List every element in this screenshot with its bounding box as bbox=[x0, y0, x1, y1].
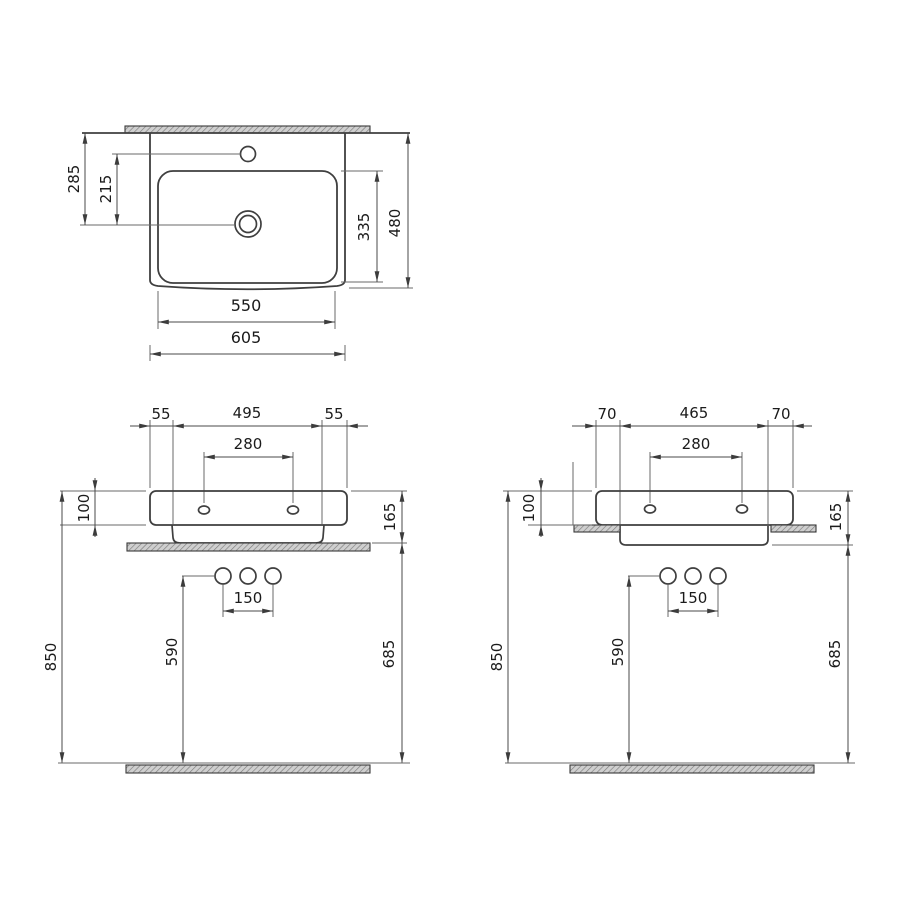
counter-hatch-bar-left bbox=[574, 525, 620, 532]
dim-label-tap-hole-spacing: 280 bbox=[234, 435, 263, 453]
dim-label-bowl-depth: 335 bbox=[355, 213, 373, 242]
dim-label-left-edge: 55 bbox=[151, 405, 170, 423]
dim-label-tap-to-drain: 215 bbox=[97, 175, 115, 204]
dim-label-base-width: 465 bbox=[680, 404, 709, 422]
dim-label-basin-total-height: 165 bbox=[827, 503, 845, 532]
dim-label-waste-hole-spacing: 150 bbox=[234, 589, 263, 607]
dim-label-right-edge: 70 bbox=[771, 405, 790, 423]
dim-label-wall-to-drain: 285 bbox=[65, 165, 83, 194]
dim-label-tap-hole-spacing: 280 bbox=[682, 435, 711, 453]
dim-label-base-width: 495 bbox=[233, 404, 262, 422]
dim-label-right-edge: 55 bbox=[324, 405, 343, 423]
wall-hatch-bar bbox=[125, 126, 370, 133]
dim-label-waste-hole-spacing: 150 bbox=[679, 589, 708, 607]
dim-label-underside-to-floor: 685 bbox=[380, 640, 398, 669]
floor-hatch-bar bbox=[570, 765, 814, 773]
dim-label-overall-depth: 480 bbox=[386, 209, 404, 238]
counter-hatch-bar bbox=[127, 543, 370, 551]
technical-drawing: 285 215 335 480 550 bbox=[0, 0, 900, 900]
dim-label-left-edge: 70 bbox=[597, 405, 616, 423]
dim-label-overall-width: 605 bbox=[231, 328, 262, 347]
dim-label-rim-height: 100 bbox=[520, 494, 538, 523]
dim-label-bowl-width: 550 bbox=[231, 296, 262, 315]
counter-hatch-bar-right bbox=[771, 525, 816, 532]
dim-label-rim-height: 100 bbox=[75, 494, 93, 523]
drawing-sheet: 285 215 335 480 550 bbox=[0, 0, 900, 900]
dim-label-basin-total-height: 165 bbox=[381, 503, 399, 532]
dim-label-underside-to-floor: 685 bbox=[826, 640, 844, 669]
dim-label-waste-holes-height: 590 bbox=[163, 638, 181, 667]
floor-hatch-bar bbox=[126, 765, 370, 773]
dim-label-waste-holes-height: 590 bbox=[609, 638, 627, 667]
dim-label-rim-to-floor: 850 bbox=[488, 643, 506, 672]
dim-label-rim-to-floor: 850 bbox=[42, 643, 60, 672]
